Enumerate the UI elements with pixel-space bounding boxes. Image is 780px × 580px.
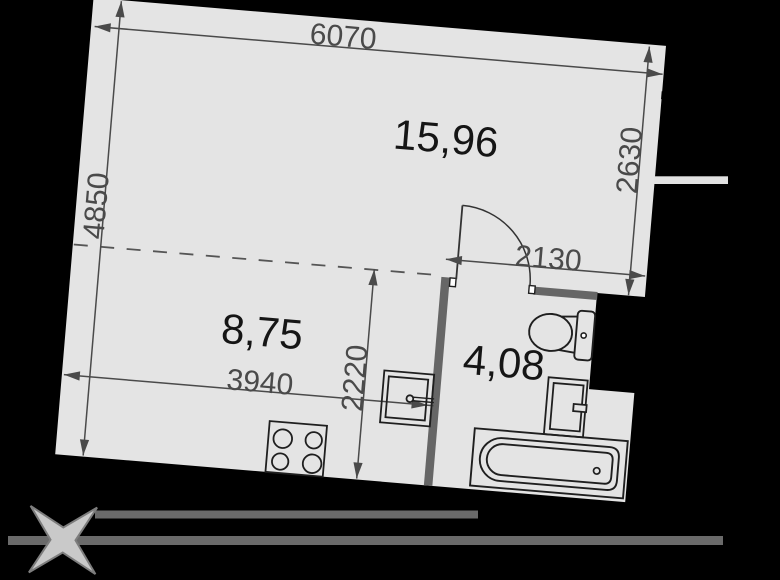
svg-text:3940: 3940	[225, 363, 294, 401]
svg-text:8,75: 8,75	[219, 305, 304, 359]
svg-text:6070: 6070	[308, 18, 377, 56]
svg-text:2630: 2630	[611, 126, 649, 195]
svg-text:2130: 2130	[514, 240, 583, 278]
svg-text:15,96: 15,96	[392, 110, 501, 166]
svg-text:2220: 2220	[336, 343, 374, 412]
svg-text:4850: 4850	[77, 171, 115, 240]
